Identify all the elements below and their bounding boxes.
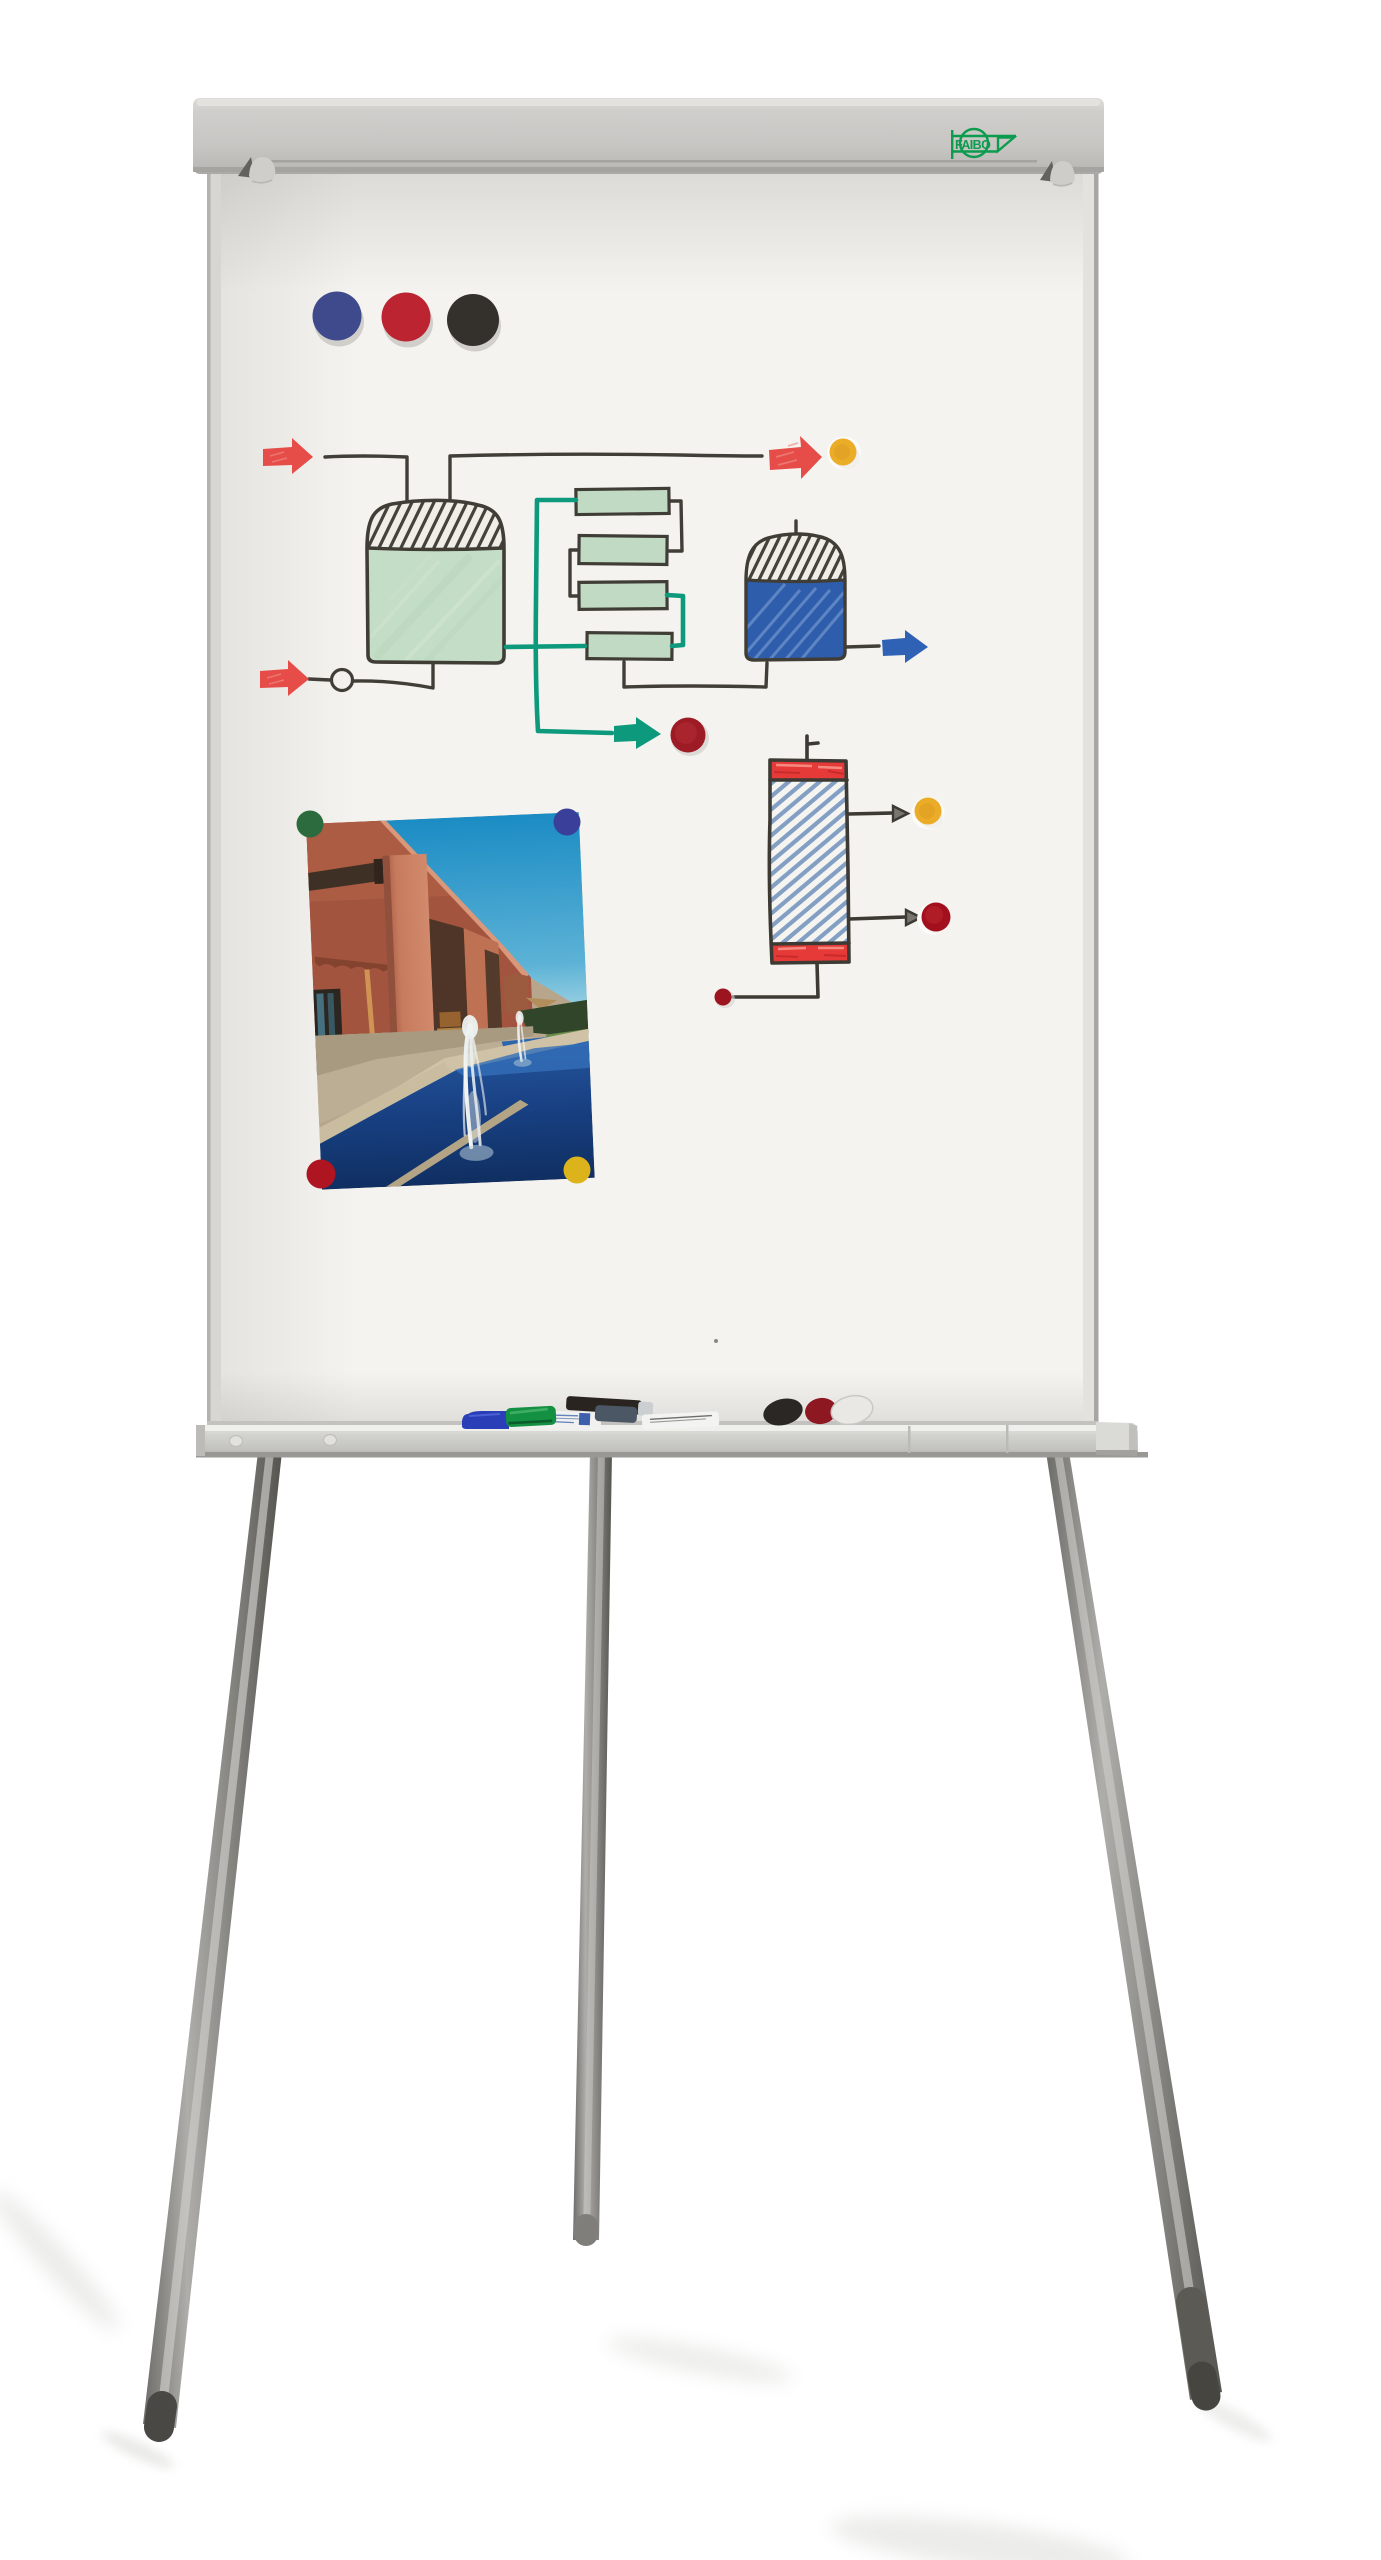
- svg-text:FAIBO: FAIBO: [955, 138, 991, 152]
